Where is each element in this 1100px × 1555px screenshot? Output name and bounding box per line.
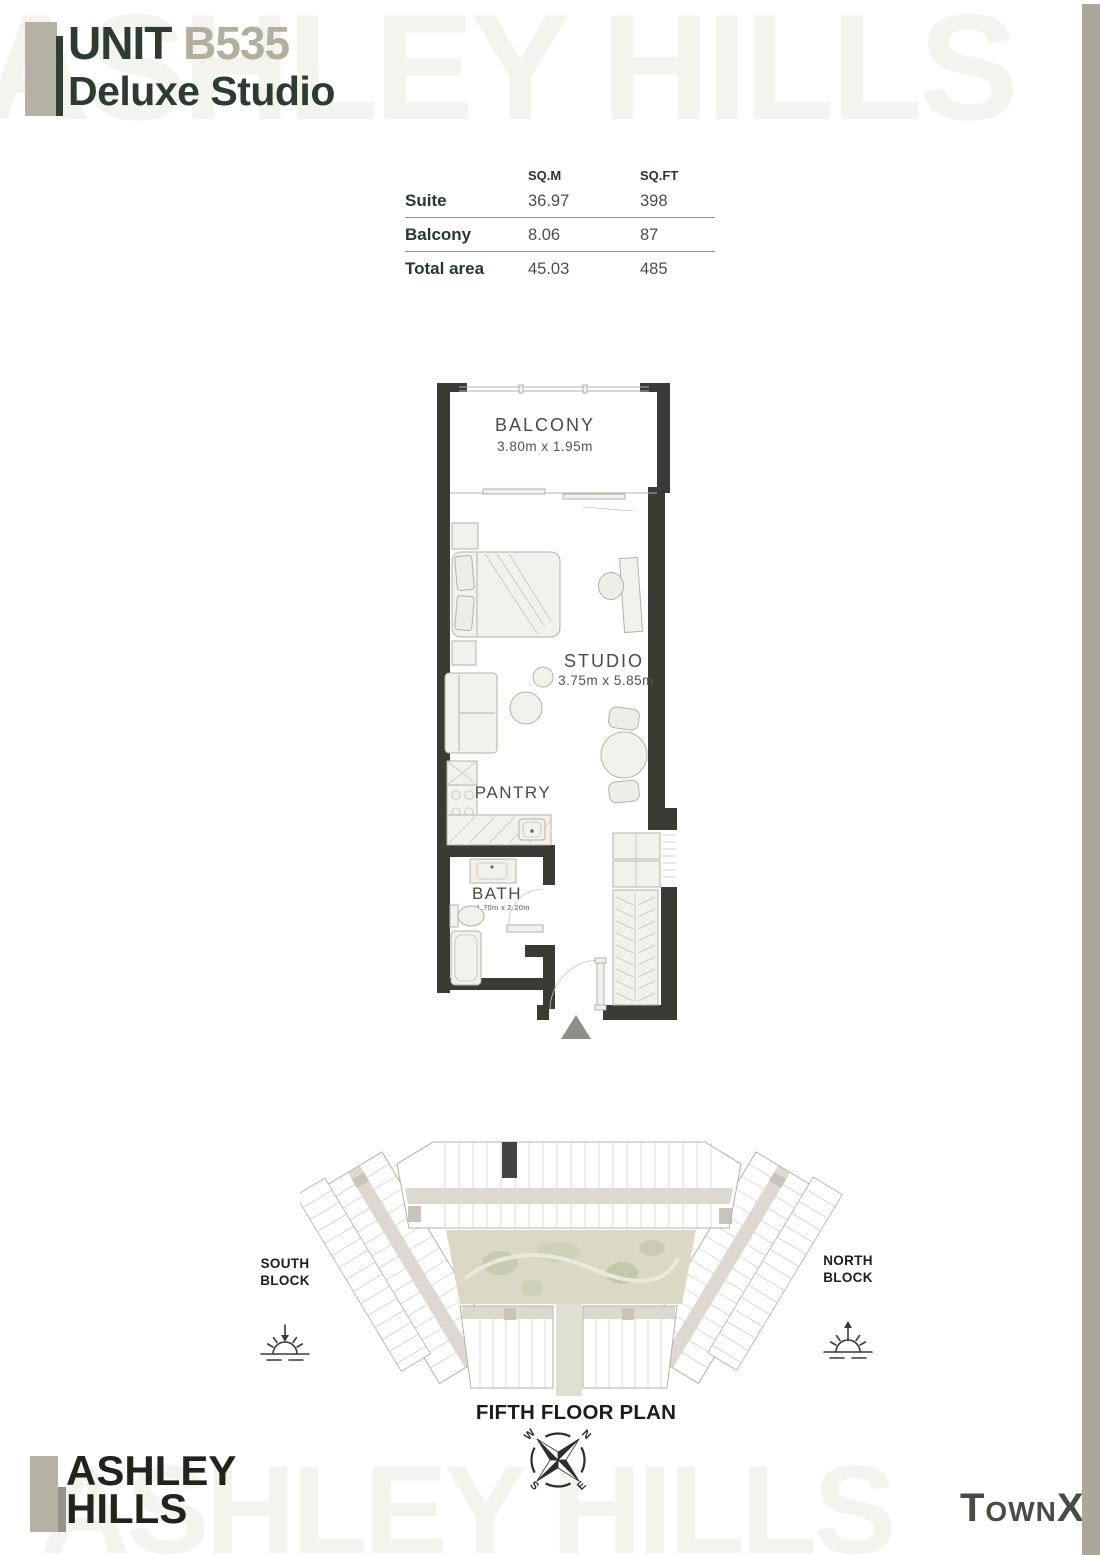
balcony-label: BALCONY <box>495 415 595 435</box>
top-wing <box>397 1142 741 1228</box>
table-divider <box>405 217 715 218</box>
unit-location-marker <box>502 1142 517 1178</box>
bottom-block-right <box>583 1306 677 1388</box>
ashley-hills-logo-line2: HILLS <box>66 1488 187 1530</box>
compass-s: S <box>527 1479 541 1493</box>
entry-door <box>550 958 606 1010</box>
brochure-page: ASHLEY HILLS ASHLEY HILLS UNIT B535 Delu… <box>0 0 1100 1555</box>
page-title: UNIT B535 <box>68 16 289 70</box>
compass-w: W <box>522 1427 538 1443</box>
table-row-total-sqft: 485 <box>640 260 668 279</box>
stool <box>533 667 553 687</box>
page-edge-bar <box>1082 4 1100 1555</box>
balcony-dims: 3.80m x 1.95m <box>497 439 593 454</box>
sofa <box>445 673 497 753</box>
nightstand <box>452 641 476 665</box>
title-accent-bar-beige <box>25 22 57 116</box>
bathtub <box>451 931 481 985</box>
sliding-door <box>450 489 657 511</box>
closet-shelves <box>613 833 660 887</box>
bottom-block-left <box>460 1306 553 1388</box>
stool <box>510 692 542 724</box>
pantry-label: PANTRY <box>475 783 551 802</box>
compass-n: N <box>579 1428 593 1442</box>
kitchen-counter <box>447 815 551 845</box>
table-header-sqm: SQ.M <box>528 168 561 183</box>
bed <box>452 552 560 637</box>
table-row-balcony-sqm: 8.06 <box>528 226 560 245</box>
desk <box>619 557 642 632</box>
table-row-total-label: Total area <box>405 259 484 279</box>
unit-floor-plan: BALCONY 3.80m x 1.95m STUDIO 3.75m x 5.8… <box>425 375 695 1045</box>
sunrise-icon <box>820 1318 876 1366</box>
unit-number: B535 <box>183 17 289 69</box>
table-row-total-sqm: 45.03 <box>528 260 569 279</box>
title-accent-bar-dark <box>56 36 63 116</box>
logo-accent-bar <box>30 1456 58 1532</box>
unit-word: UNIT <box>68 17 171 69</box>
table-row-suite-label: Suite <box>405 191 447 211</box>
table-divider <box>405 251 715 252</box>
logo-accent-bar-dark <box>58 1487 66 1532</box>
fridge <box>447 761 477 785</box>
table-row-balcony-sqft: 87 <box>640 226 658 245</box>
nightstand <box>452 523 478 549</box>
north-block-label: NORTH BLOCK <box>793 1253 903 1286</box>
entry-arrow <box>561 1015 591 1039</box>
toilet <box>450 905 484 927</box>
unit-type: Deluxe Studio <box>68 68 335 115</box>
wardrobe <box>613 890 658 1005</box>
desk-chair <box>599 573 624 600</box>
table-row-suite-sqm: 36.97 <box>528 192 569 211</box>
dining-set <box>601 706 647 803</box>
compass-e: E <box>575 1479 589 1493</box>
bath-label: BATH <box>472 884 522 903</box>
table-header-sqft: SQ.FT <box>640 168 678 183</box>
sunset-icon <box>257 1320 313 1368</box>
balcony-railing <box>459 385 649 393</box>
table-row-balcony-label: Balcony <box>405 225 471 245</box>
bath-dims: 1.70m x 2.20m <box>476 903 530 912</box>
townx-logo: TownX <box>960 1486 1085 1531</box>
bath-vanity <box>470 859 516 883</box>
compass-rose: N W S E <box>516 1424 608 1508</box>
studio-label: STUDIO <box>564 651 644 671</box>
floor-plan-caption: FIFTH FLOOR PLAN <box>450 1401 702 1425</box>
south-block-label: SOUTH BLOCK <box>230 1256 340 1289</box>
studio-dims: 3.75m x 5.85m <box>558 673 654 688</box>
service-shaft <box>662 835 676 877</box>
table-row-suite-sqft: 398 <box>640 192 668 211</box>
